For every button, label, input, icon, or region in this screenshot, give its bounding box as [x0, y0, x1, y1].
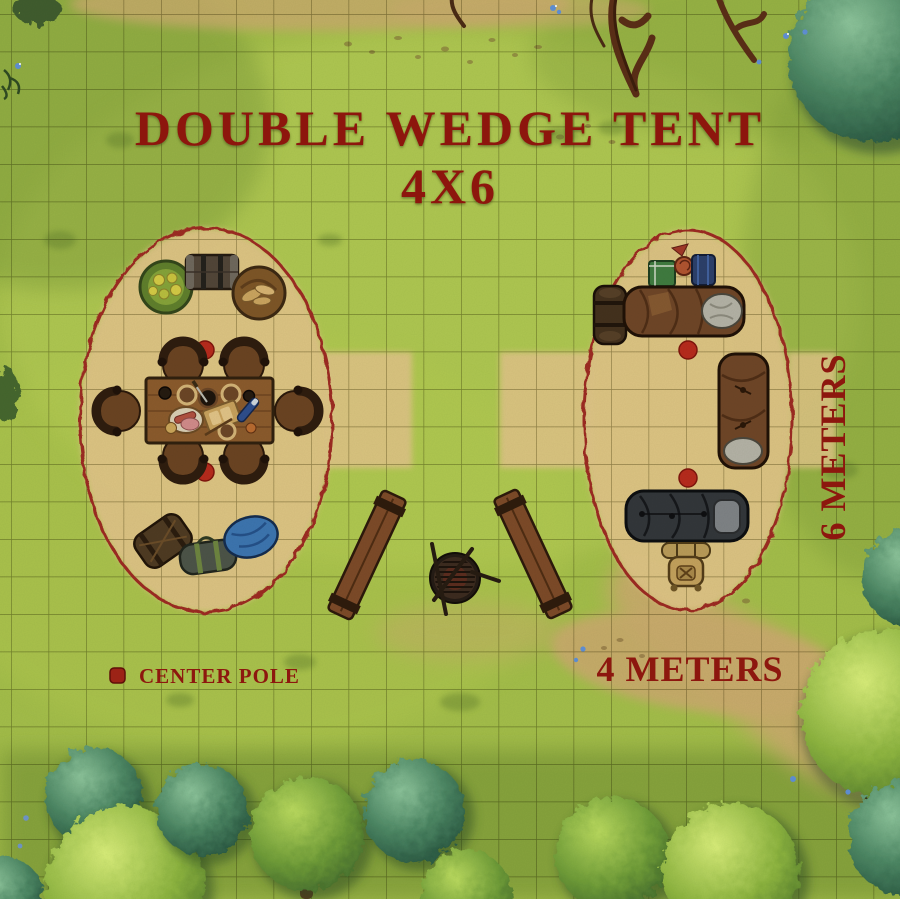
map-title-line2: 4X6 [401, 158, 499, 214]
height-dimension-label: 6 METERS [813, 353, 853, 540]
legend: CENTER POLE [110, 664, 300, 688]
center-pole-legend-label: CENTER POLE [139, 664, 300, 688]
map-title-line1: DOUBLE WEDGE TENT [135, 100, 765, 156]
width-dimension-label: 4 METERS [596, 649, 783, 689]
battle-map-image: DOUBLE WEDGE TENT 4X6 6 METERS 4 METERS … [0, 0, 900, 899]
center-pole-legend-marker [110, 668, 125, 683]
battle-map: DOUBLE WEDGE TENT 4X6 6 METERS 4 METERS … [0, 0, 900, 899]
